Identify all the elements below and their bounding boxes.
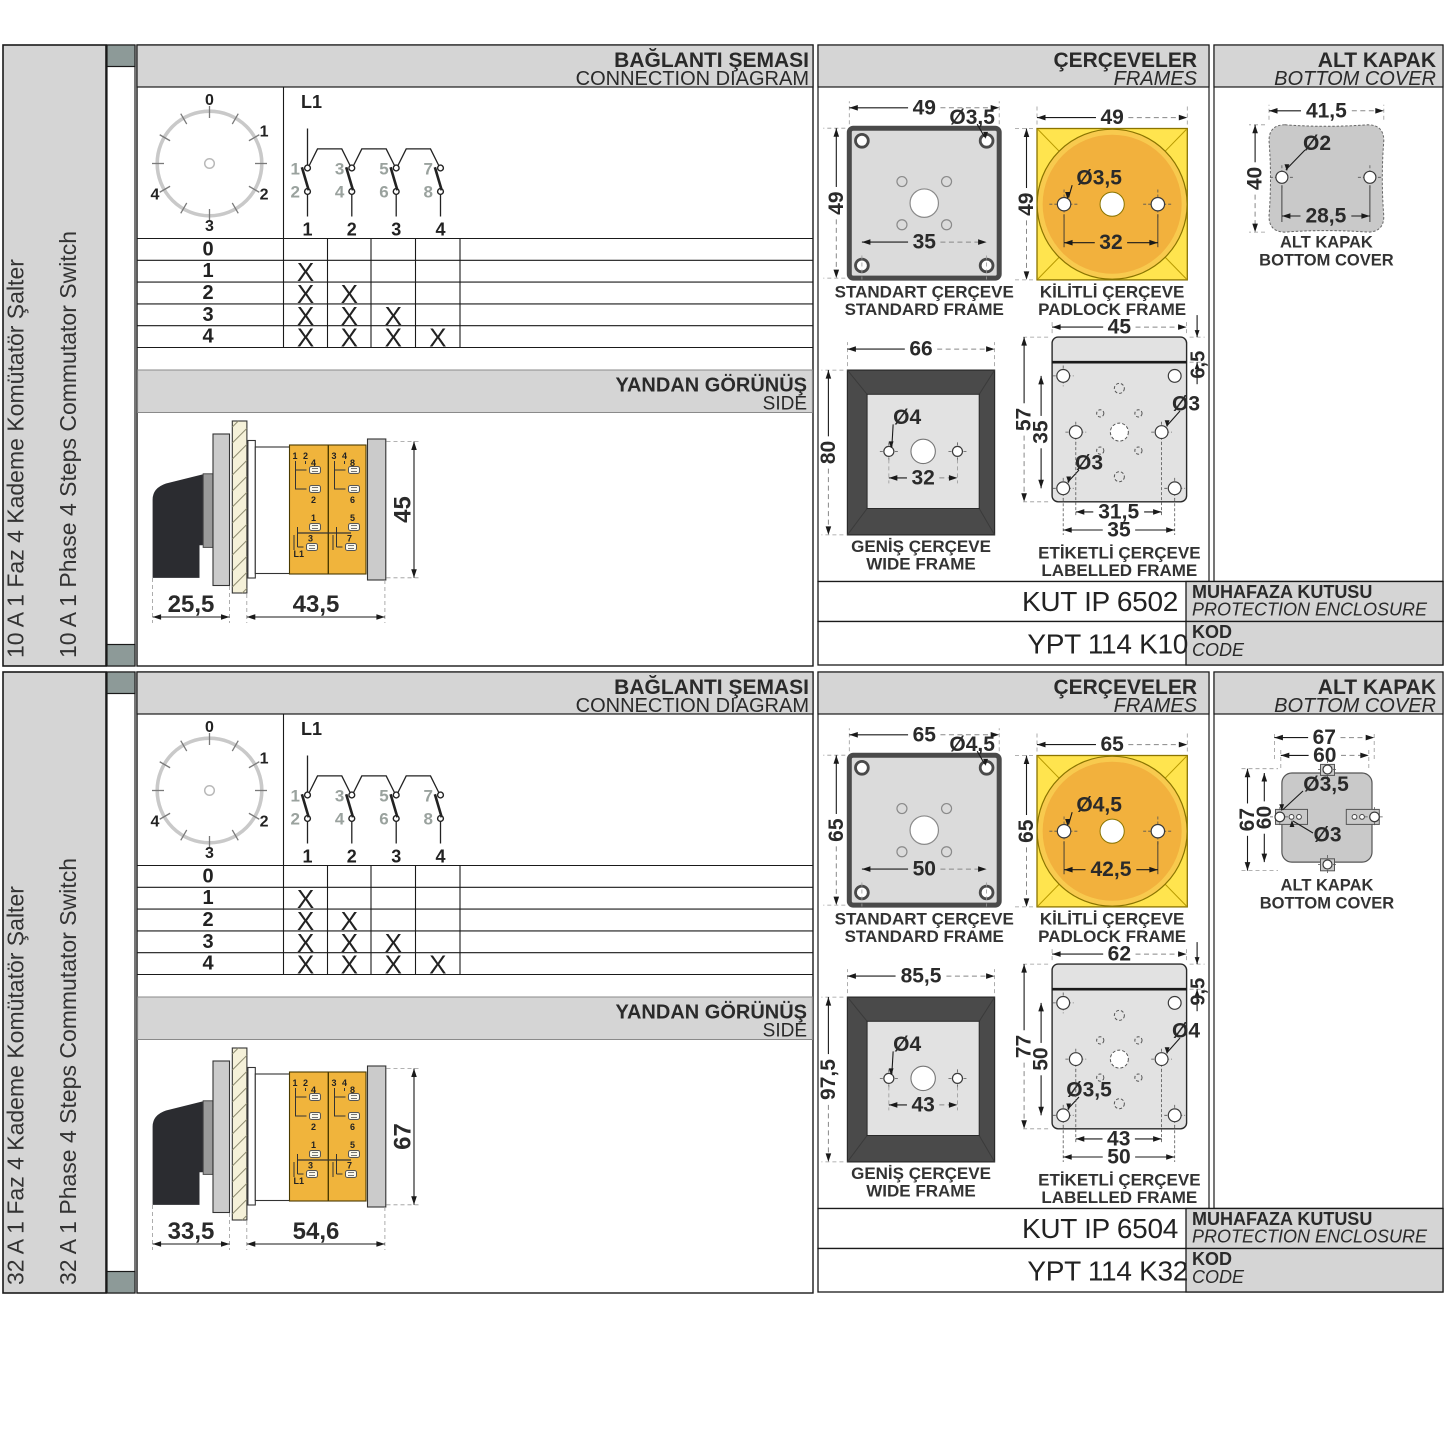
svg-text:KOD: KOD (1192, 622, 1232, 642)
svg-text:ETİKETLİ ÇERÇEVE: ETİKETLİ ÇERÇEVE (1038, 544, 1200, 563)
svg-text:8: 8 (424, 183, 433, 202)
svg-text:1: 1 (202, 887, 213, 909)
svg-text:2: 2 (347, 220, 357, 240)
svg-text:X: X (429, 323, 446, 353)
svg-text:3: 3 (335, 787, 344, 806)
svg-text:Ø3,5: Ø3,5 (1066, 1079, 1112, 1102)
svg-text:Ø4,5: Ø4,5 (949, 733, 995, 756)
svg-text:80: 80 (817, 441, 840, 464)
svg-text:7: 7 (347, 1161, 352, 1171)
svg-text:ALT KAPAK: ALT KAPAK (1280, 234, 1373, 252)
svg-text:1: 1 (260, 124, 269, 141)
svg-text:3: 3 (202, 931, 213, 953)
svg-text:2: 2 (202, 282, 213, 304)
svg-text:50: 50 (1107, 1146, 1130, 1169)
svg-text:3: 3 (391, 847, 401, 867)
svg-text:Ø3: Ø3 (1172, 393, 1200, 416)
svg-text:L1: L1 (294, 1176, 305, 1186)
svg-text:BOTTOM COVER: BOTTOM COVER (1259, 252, 1394, 270)
svg-text:3: 3 (391, 220, 401, 240)
svg-text:FRAMES: FRAMES (1114, 68, 1198, 90)
svg-text:CONNECTION DIAGRAM: CONNECTION DIAGRAM (576, 695, 809, 717)
svg-text:8: 8 (424, 810, 433, 829)
svg-text:45: 45 (390, 496, 417, 523)
svg-text:2: 2 (260, 187, 269, 204)
svg-text:KİLİTLİ ÇERÇEVE: KİLİTLİ ÇERÇEVE (1040, 283, 1185, 302)
svg-text:62: 62 (1108, 943, 1131, 966)
svg-text:ETİKETLİ ÇERÇEVE: ETİKETLİ ÇERÇEVE (1038, 1171, 1200, 1190)
svg-text:3: 3 (335, 160, 344, 179)
svg-text:X: X (297, 323, 314, 353)
svg-text:GENİŞ ÇERÇEVE: GENİŞ ÇERÇEVE (851, 537, 991, 556)
svg-text:ALT KAPAK: ALT KAPAK (1281, 877, 1374, 895)
svg-text:1: 1 (302, 220, 312, 240)
svg-text:32 A 1 Faz 4 Kademe Komütatör: 32 A 1 Faz 4 Kademe Komütatör Şalter (3, 886, 29, 1285)
svg-text:X: X (297, 950, 314, 980)
svg-text:KUT IP 6504: KUT IP 6504 (1022, 1213, 1178, 1244)
svg-text:1: 1 (202, 260, 213, 282)
svg-text:0: 0 (205, 92, 214, 109)
svg-text:KUT IP 6502: KUT IP 6502 (1022, 586, 1178, 617)
svg-text:X: X (385, 950, 402, 980)
svg-text:50: 50 (913, 858, 936, 881)
svg-text:32: 32 (1099, 231, 1122, 254)
svg-text:1: 1 (311, 1140, 316, 1150)
svg-text:97,5: 97,5 (817, 1059, 840, 1100)
svg-text:43,5: 43,5 (293, 591, 340, 618)
svg-text:L1: L1 (301, 719, 322, 739)
svg-text:32 A 1 Phase 4 Steps Commutato: 32 A 1 Phase 4 Steps Commutator Switch (55, 858, 81, 1285)
svg-text:X: X (385, 323, 402, 353)
svg-text:2: 2 (347, 847, 357, 867)
svg-text:25,5: 25,5 (168, 591, 215, 618)
svg-text:5: 5 (350, 1140, 355, 1150)
svg-text:49: 49 (913, 96, 936, 119)
svg-text:1: 1 (302, 847, 312, 867)
svg-text:CODE: CODE (1192, 1267, 1245, 1287)
svg-text:Ø3: Ø3 (1313, 824, 1341, 847)
svg-text:3: 3 (205, 218, 214, 235)
svg-text:YPT 114 K10: YPT 114 K10 (1027, 629, 1188, 660)
svg-text:2: 2 (291, 810, 300, 829)
svg-text:3: 3 (331, 1078, 336, 1088)
svg-text:GENİŞ ÇERÇEVE: GENİŞ ÇERÇEVE (851, 1164, 991, 1183)
svg-text:WIDE FRAME: WIDE FRAME (866, 1182, 976, 1201)
svg-text:SIDE: SIDE (763, 1021, 807, 1042)
svg-text:10 A 1 Phase 4 Steps Commutato: 10 A 1 Phase 4 Steps Commutator Switch (55, 231, 81, 658)
svg-text:STANDARD FRAME: STANDARD FRAME (845, 300, 1004, 319)
svg-text:0: 0 (202, 865, 213, 887)
svg-text:6: 6 (379, 183, 388, 202)
svg-text:67: 67 (390, 1123, 417, 1150)
svg-text:STANDART ÇERÇEVE: STANDART ÇERÇEVE (835, 283, 1014, 302)
svg-text:6: 6 (350, 1122, 355, 1132)
svg-text:BOTTOM COVER: BOTTOM COVER (1260, 895, 1395, 913)
svg-text:6: 6 (379, 810, 388, 829)
svg-text:Ø3: Ø3 (1075, 452, 1103, 475)
svg-text:7: 7 (424, 787, 433, 806)
svg-text:7: 7 (424, 160, 433, 179)
svg-text:YPT 114 K32: YPT 114 K32 (1027, 1256, 1188, 1287)
svg-text:49: 49 (825, 191, 848, 214)
svg-text:Ø4: Ø4 (1172, 1020, 1200, 1043)
svg-text:4: 4 (202, 326, 214, 348)
svg-text:1: 1 (291, 160, 300, 179)
svg-text:60: 60 (1313, 744, 1336, 767)
svg-text:X: X (341, 323, 358, 353)
svg-text:1: 1 (291, 787, 300, 806)
svg-text:10 A 1 Faz 4 Kademe Komütatör: 10 A 1 Faz 4 Kademe Komütatör Şalter (3, 259, 29, 658)
svg-text:3: 3 (308, 534, 313, 544)
svg-text:Ø4: Ø4 (893, 1033, 921, 1056)
svg-text:65: 65 (1015, 819, 1038, 843)
svg-text:WIDE FRAME: WIDE FRAME (866, 555, 976, 574)
svg-text:BOTTOM COVER: BOTTOM COVER (1274, 695, 1436, 717)
svg-text:5: 5 (350, 513, 355, 523)
svg-text:65: 65 (1100, 733, 1124, 756)
svg-text:L1: L1 (294, 549, 305, 559)
svg-text:4: 4 (435, 847, 445, 867)
svg-text:28,5: 28,5 (1305, 205, 1346, 228)
svg-text:4: 4 (335, 810, 345, 829)
svg-text:35: 35 (1030, 420, 1053, 444)
svg-text:2: 2 (291, 183, 300, 202)
svg-text:X: X (429, 950, 446, 980)
svg-text:3: 3 (308, 1161, 313, 1171)
svg-text:41,5: 41,5 (1306, 99, 1347, 122)
svg-text:40: 40 (1244, 167, 1267, 190)
svg-text:5: 5 (379, 787, 388, 806)
svg-text:6: 6 (350, 495, 355, 505)
svg-text:42,5: 42,5 (1091, 858, 1132, 881)
svg-text:2: 2 (311, 495, 316, 505)
svg-text:35: 35 (913, 231, 937, 254)
svg-text:STANDART ÇERÇEVE: STANDART ÇERÇEVE (835, 910, 1014, 929)
svg-text:4: 4 (150, 187, 159, 204)
svg-text:LABELLED FRAME: LABELLED FRAME (1041, 1188, 1197, 1207)
svg-text:9,5: 9,5 (1188, 978, 1210, 1006)
svg-text:2: 2 (202, 909, 213, 931)
svg-text:32: 32 (911, 466, 934, 489)
svg-text:65: 65 (913, 723, 937, 746)
svg-text:3: 3 (205, 845, 214, 862)
svg-text:SIDE: SIDE (763, 394, 807, 415)
svg-text:4: 4 (435, 220, 445, 240)
svg-text:KİLİTLİ ÇERÇEVE: KİLİTLİ ÇERÇEVE (1040, 910, 1185, 929)
svg-text:3: 3 (331, 451, 336, 461)
svg-text:60: 60 (1253, 806, 1276, 829)
svg-text:Ø4: Ø4 (893, 406, 921, 429)
svg-text:4: 4 (342, 1078, 347, 1088)
svg-text:Ø4,5: Ø4,5 (1076, 794, 1122, 817)
svg-text:Ø3,5: Ø3,5 (949, 106, 995, 129)
svg-text:X: X (341, 950, 358, 980)
svg-text:1: 1 (311, 513, 316, 523)
svg-text:Ø3,5: Ø3,5 (1076, 167, 1122, 190)
svg-text:PROTECTION ENCLOSURE: PROTECTION ENCLOSURE (1192, 1227, 1428, 1247)
svg-text:3: 3 (202, 304, 213, 326)
svg-text:2: 2 (311, 1122, 316, 1132)
svg-text:Ø3,5: Ø3,5 (1303, 773, 1349, 796)
svg-text:FRAMES: FRAMES (1114, 695, 1198, 717)
svg-text:49: 49 (1015, 193, 1038, 216)
svg-text:45: 45 (1108, 316, 1132, 339)
svg-text:4: 4 (335, 183, 345, 202)
svg-text:CONNECTION DIAGRAM: CONNECTION DIAGRAM (576, 68, 809, 90)
svg-text:1: 1 (292, 1078, 297, 1088)
svg-text:1: 1 (260, 751, 269, 768)
svg-text:65: 65 (825, 818, 848, 842)
svg-text:LABELLED FRAME: LABELLED FRAME (1041, 561, 1197, 580)
svg-text:BOTTOM COVER: BOTTOM COVER (1274, 68, 1436, 90)
svg-text:1: 1 (292, 451, 297, 461)
svg-text:KOD: KOD (1192, 1249, 1232, 1269)
svg-text:4: 4 (202, 953, 214, 975)
svg-text:7: 7 (347, 534, 352, 544)
svg-text:0: 0 (205, 719, 214, 736)
svg-text:50: 50 (1030, 1047, 1053, 1070)
svg-text:0: 0 (202, 238, 213, 260)
svg-text:Ø2: Ø2 (1303, 132, 1331, 155)
svg-text:4: 4 (150, 814, 159, 831)
svg-text:PROTECTION ENCLOSURE: PROTECTION ENCLOSURE (1192, 600, 1428, 620)
svg-text:66: 66 (909, 338, 932, 361)
svg-text:2: 2 (303, 1078, 308, 1088)
svg-text:4: 4 (342, 451, 347, 461)
svg-text:43: 43 (911, 1093, 934, 1116)
svg-text:2: 2 (260, 814, 269, 831)
svg-text:L1: L1 (301, 92, 322, 112)
svg-text:STANDARD FRAME: STANDARD FRAME (845, 927, 1004, 946)
svg-text:2: 2 (303, 451, 308, 461)
svg-text:49: 49 (1100, 106, 1123, 129)
svg-text:5: 5 (379, 160, 388, 179)
svg-text:6,5: 6,5 (1188, 351, 1210, 379)
svg-text:33,5: 33,5 (168, 1218, 215, 1245)
svg-text:54,6: 54,6 (293, 1218, 340, 1245)
svg-text:35: 35 (1107, 519, 1131, 542)
svg-text:85,5: 85,5 (901, 965, 942, 988)
svg-text:CODE: CODE (1192, 640, 1245, 660)
